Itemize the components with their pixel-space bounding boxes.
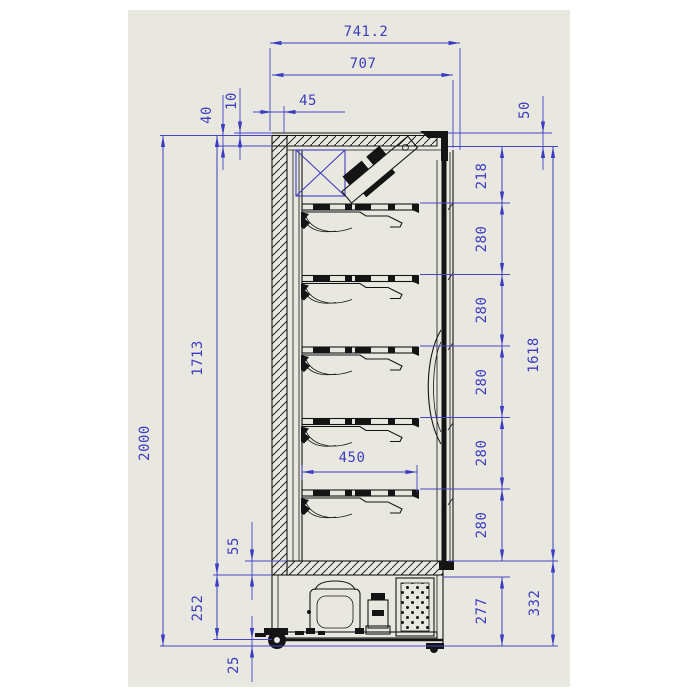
dim-label-total-depth: 741.2 <box>344 24 389 40</box>
dim-label-floor-clearance: 25 <box>226 656 242 674</box>
dim-label-total-height: 2000 <box>137 425 153 461</box>
dim-label-top-insulation: 40 <box>199 106 215 124</box>
dim-label-base-frame-height: 252 <box>190 595 206 622</box>
drawing-page: 741.2 707 45 40 10 50 218 280 280 <box>0 0 700 700</box>
dim-label-interior-height: 1713 <box>190 340 206 376</box>
dim-label-top-rear-offset: 45 <box>299 93 317 109</box>
dim-label-first-shelf-drop: 218 <box>474 163 490 190</box>
dim-label-shelf-spacing: 280 <box>474 512 490 539</box>
dim-label-shelf-depth: 450 <box>339 450 366 466</box>
dim-label-shelf-spacing: 280 <box>474 297 490 324</box>
dim-label-shelf-stack-height: 1618 <box>526 337 542 373</box>
dim-label-case-depth: 707 <box>350 56 377 72</box>
cad-drawing: 741.2 707 45 40 10 50 218 280 280 <box>0 0 700 700</box>
dim-label-shelf-spacing: 280 <box>474 440 490 467</box>
dim-label-machine-bay-height: 277 <box>474 598 490 625</box>
dim-label-deck-thickness: 55 <box>226 537 242 555</box>
condenser <box>396 578 434 636</box>
dim-label-front-top-height: 50 <box>517 101 533 119</box>
dim-label-base-section-height: 332 <box>527 590 543 617</box>
bottom-deck <box>287 561 443 575</box>
dim-label-lid-gap: 10 <box>224 92 240 110</box>
dim-label-shelf-spacing: 280 <box>474 226 490 253</box>
dim-label-shelf-spacing: 280 <box>474 369 490 396</box>
